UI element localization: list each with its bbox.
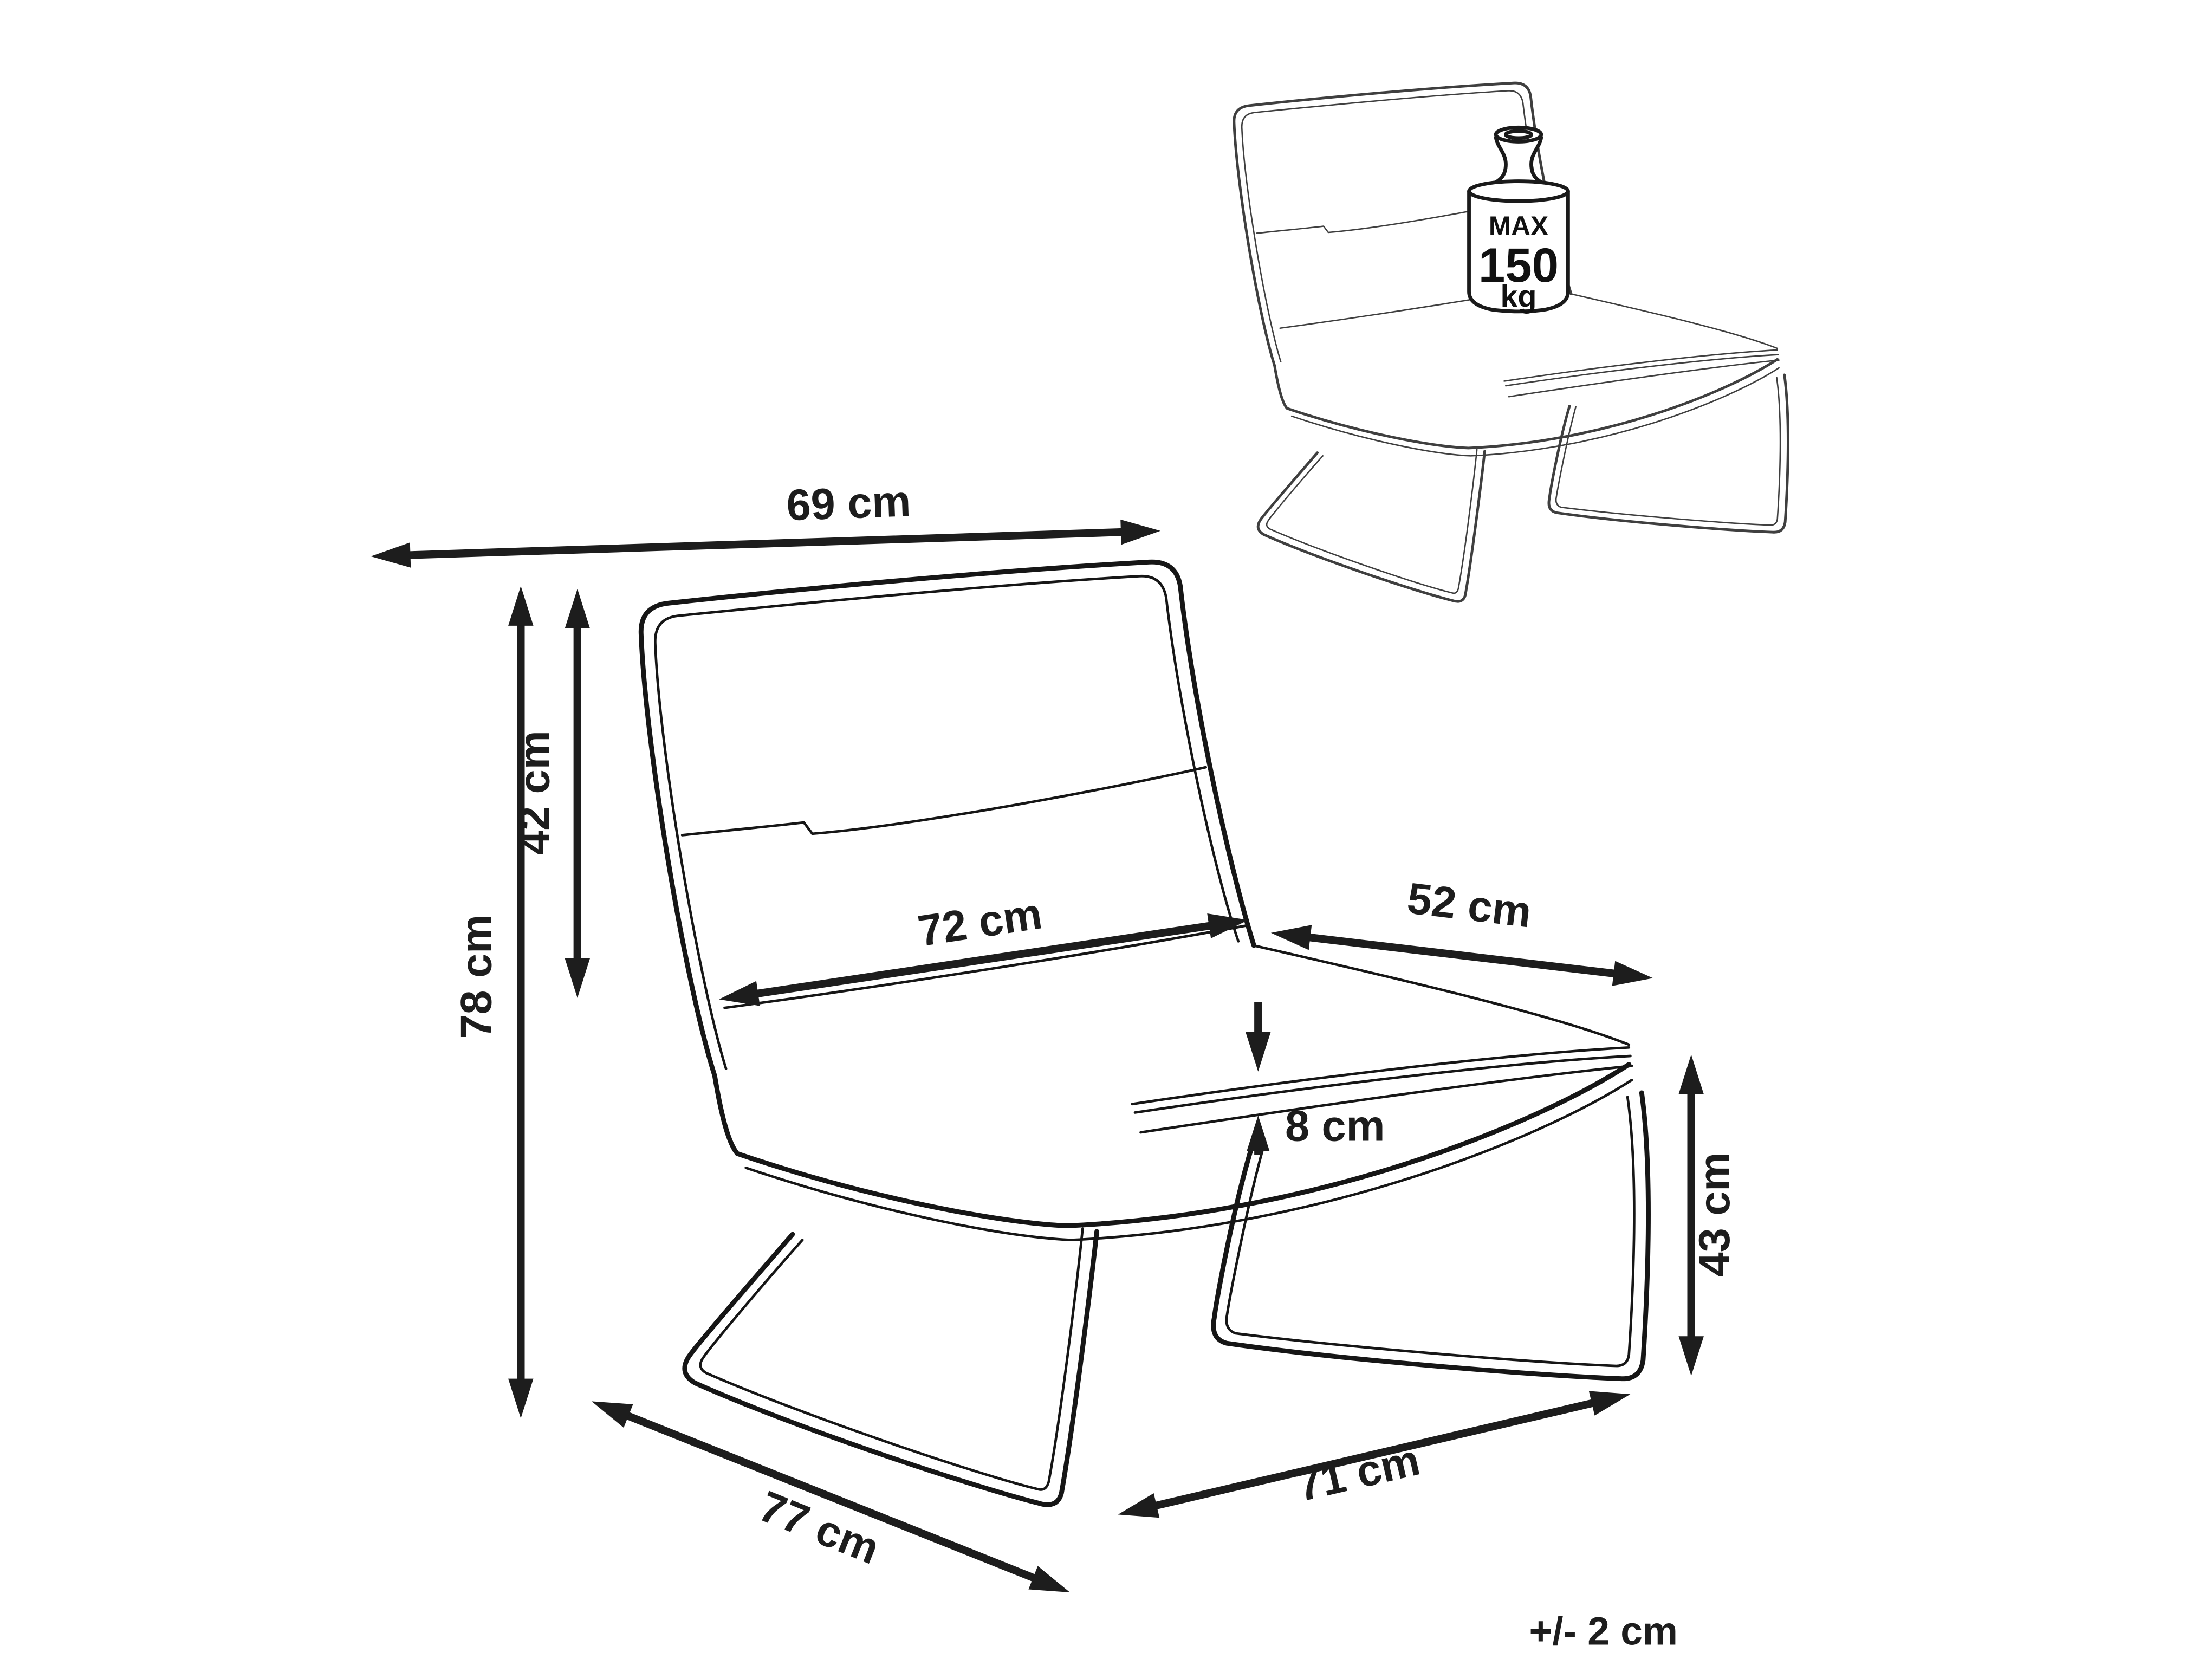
dimensions: 69 cm78 cm42 cm72 cm52 cm8 cm43 cm77 cm7… [371,477,1739,1592]
dimension-label-seat-depth: 72 cm [915,889,1045,956]
dimension-cushion-top-marker [1246,1002,1270,1072]
main-chair [641,562,1648,1505]
dimension-seat-depth: 72 cm [719,889,1248,1006]
dimension-total-height: 78 cm [452,586,533,1418]
dimension-backrest-width: 69 cm [371,477,1160,567]
dimension-cushion-thickness: 8 cm [1247,1102,1385,1155]
max-load-weight: MAX 150 kg [1469,127,1568,314]
dimension-base-width: 71 cm [1118,1391,1631,1518]
dimension-label-total-height: 78 cm [452,915,501,1039]
chair-dimension-diagram: MAX 150 kg 69 cm78 cm42 cm72 cm52 cm8 cm… [0,0,2212,1659]
dimension-label-leg-height: 43 cm [1690,1152,1739,1277]
dimension-label-base-width: 71 cm [1292,1436,1424,1511]
dimension-label-cushion-thickness: 8 cm [1285,1102,1385,1151]
dimension-label-backrest-height: 42 cm [510,730,559,855]
dimension-leg-height: 43 cm [1678,1054,1739,1376]
dimension-label-seat-width: 52 cm [1405,874,1534,937]
weight-shoulder [1469,182,1568,202]
max-load-line3: kg [1500,280,1536,314]
dimension-label-backrest-width: 69 cm [786,477,912,530]
max-load-line1: MAX [1489,211,1548,241]
dimension-base-depth: 77 cm [592,1401,1070,1592]
dimension-seat-width: 52 cm [1271,874,1653,986]
tolerance-note: +/- 2 cm [1529,1610,1678,1654]
